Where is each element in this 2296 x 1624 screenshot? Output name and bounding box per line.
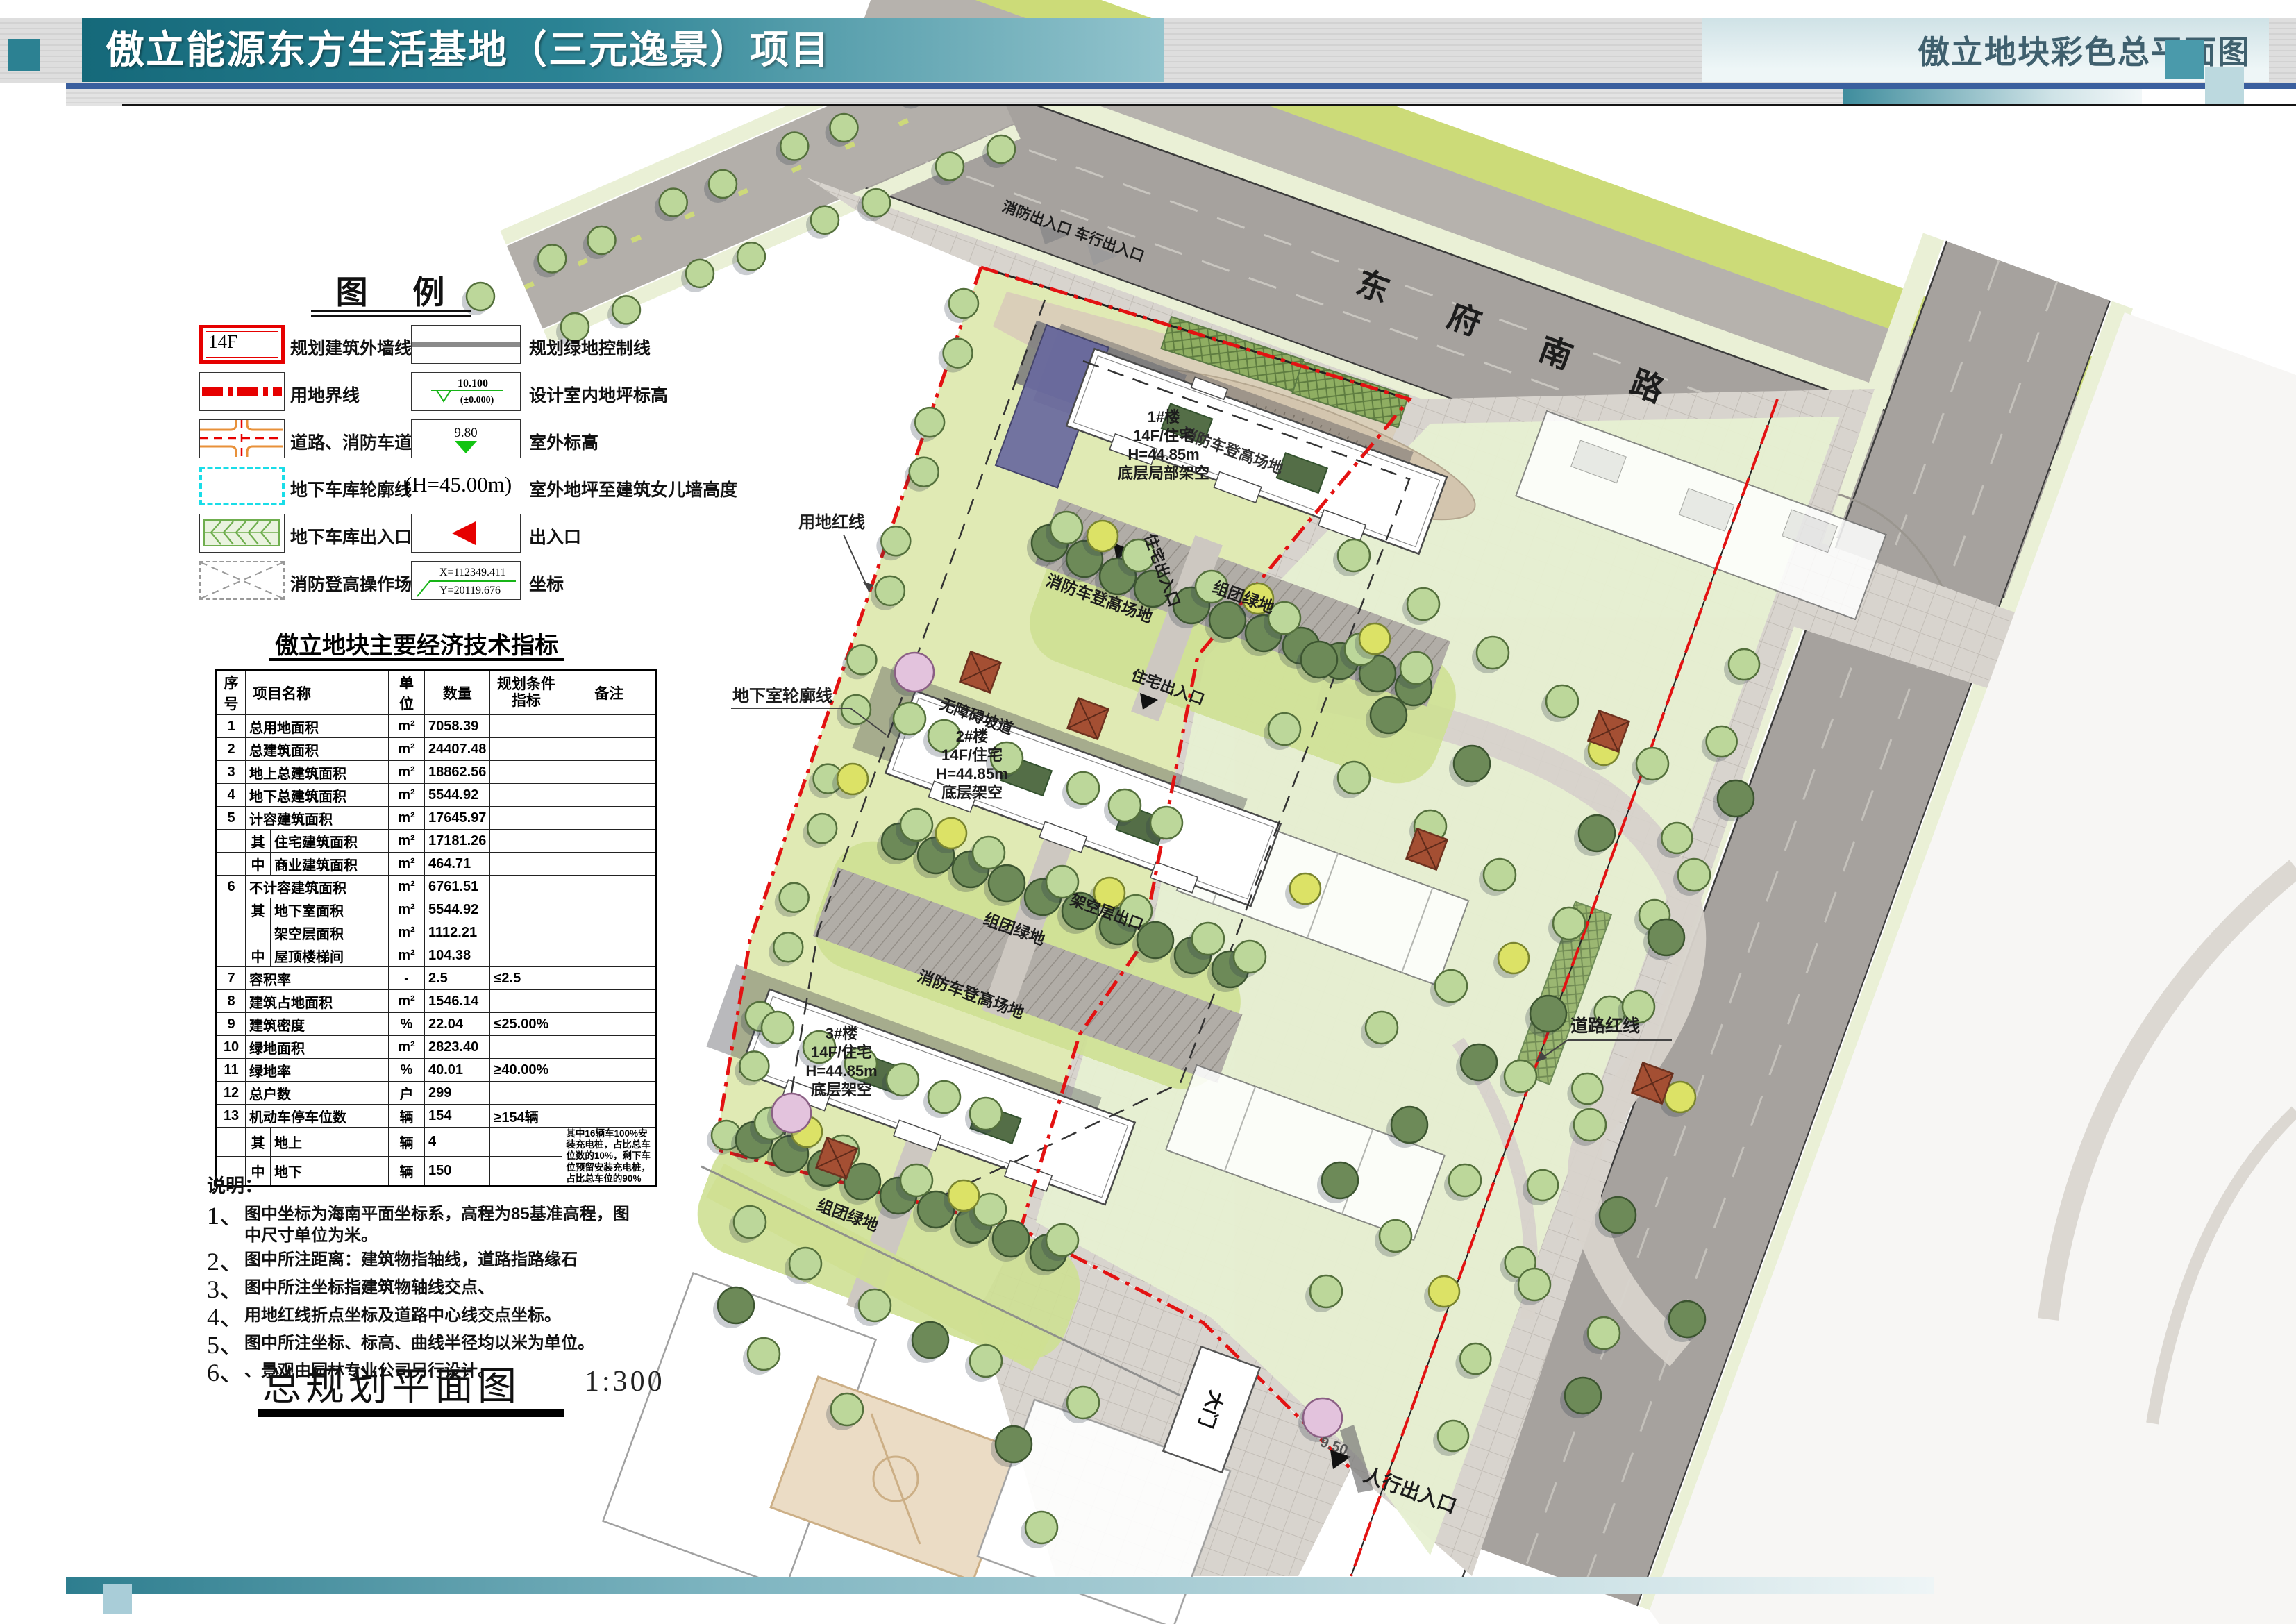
land-boundary-symbol <box>199 372 285 411</box>
note-number: 3、 <box>207 1277 244 1302</box>
table-cell: 1 <box>217 715 246 738</box>
table-cell <box>562 715 657 738</box>
tree-icon <box>944 339 973 368</box>
table-cell: 13 <box>217 1105 246 1128</box>
tree-icon <box>1137 922 1173 958</box>
tree-icon <box>987 135 1015 163</box>
table-cell <box>562 944 657 967</box>
table-cell <box>562 807 657 830</box>
svg-text:14F/住宅: 14F/住宅 <box>811 1044 872 1061</box>
tree-icon <box>1366 1012 1398 1044</box>
table-cell: 总建筑面积 <box>246 738 389 761</box>
table-cell <box>562 876 657 898</box>
tree-icon <box>1359 623 1390 654</box>
tree-icon <box>910 458 939 487</box>
legend-label: 出入口 <box>529 524 581 549</box>
table-header-row: 序号 项目名称 单位 数量 规划条件指标 备注 <box>217 671 657 715</box>
table-row: 10绿地面积m²2823.40 <box>217 1036 657 1059</box>
table-cell: 屋顶楼梯间 <box>271 944 389 967</box>
table-cell <box>490 1128 562 1157</box>
tree-icon <box>894 703 925 735</box>
tree-icon <box>859 1289 891 1321</box>
table-cell: 不计容建筑面积 <box>246 876 389 898</box>
tree-icon <box>1391 1107 1427 1143</box>
tree-icon <box>1729 649 1759 680</box>
table-cell: 2823.40 <box>425 1036 490 1059</box>
table-cell: 建筑密度 <box>246 1013 389 1036</box>
table-row: 4地下总建筑面积m²5544.92 <box>217 784 657 807</box>
table-cell <box>562 853 657 876</box>
table-cell: 辆 <box>389 1128 425 1157</box>
tree-icon <box>1574 1109 1606 1141</box>
note-text: 图中所注坐标指建筑物轴线交点、 <box>244 1277 494 1302</box>
table-cell <box>562 1013 657 1036</box>
table-cell: - <box>389 967 425 990</box>
table-cell: % <box>389 1013 425 1036</box>
tree-icon <box>936 153 964 181</box>
tree-icon <box>1572 1073 1602 1104</box>
table-cell: m² <box>389 715 425 738</box>
tree-icon <box>780 133 808 160</box>
table-cell <box>562 761 657 784</box>
entrance-symbol <box>411 514 521 553</box>
table-cell <box>490 1082 562 1105</box>
table-cell: m² <box>389 944 425 967</box>
tree-icon <box>1718 780 1754 817</box>
table-cell: 18862.56 <box>425 761 490 784</box>
legend-title: 图 例 <box>316 267 483 313</box>
table-cell: 17181.26 <box>425 830 490 853</box>
table-cell <box>562 738 657 761</box>
table-cell <box>562 784 657 807</box>
table-cell: 4 <box>425 1128 490 1157</box>
table-cell: 2.5 <box>425 967 490 990</box>
legend-label: 规划绿地控制线 <box>529 335 651 360</box>
tree-icon <box>1303 1398 1342 1437</box>
indoor-level-value: 10.100 <box>458 378 488 390</box>
tree-icon <box>1600 1197 1636 1233</box>
tree-icon <box>1192 923 1224 955</box>
footer-square <box>103 1584 132 1614</box>
table-row: 架空层面积m²1112.21 <box>217 921 657 944</box>
tree-icon <box>1234 941 1266 973</box>
tree-icon <box>737 242 765 270</box>
table-cell: ≥40.00% <box>490 1059 562 1082</box>
tree-icon <box>1484 859 1516 891</box>
tree-icon <box>1669 1301 1705 1337</box>
table-cell: 154 <box>425 1105 490 1128</box>
note-number: 2、 <box>207 1249 244 1274</box>
table-row: 中屋顶楼梯间m²104.38 <box>217 944 657 967</box>
parapet-height-symbol: (H=45.00m) <box>392 472 524 497</box>
svg-text:底层局部架空: 底层局部架空 <box>1118 464 1209 482</box>
header-substripe-right <box>1843 89 2142 106</box>
table-cell: 总用地面积 <box>246 715 389 738</box>
table-row: 8建筑占地面积m²1546.14 <box>217 990 657 1013</box>
table-cell: 住宅建筑面积 <box>271 830 389 853</box>
tree-icon <box>1407 588 1439 620</box>
note-number: 5、 <box>207 1332 244 1357</box>
table-cell: 12 <box>217 1082 246 1105</box>
table-cell: m² <box>389 876 425 898</box>
table-cell <box>217 898 246 921</box>
tree-icon <box>1310 1275 1342 1307</box>
table-row: 13机动车停车位数辆154≥154辆 <box>217 1105 657 1128</box>
note-text: 图中所注距离：建筑物指轴线，道路指路缘石 <box>244 1249 578 1274</box>
page-title: 傲立能源东方生活基地（三元逸景）项目 <box>82 18 1164 82</box>
svg-text:底层架空: 底层架空 <box>941 784 1003 801</box>
table-cell: 中 <box>246 944 271 967</box>
tree-icon <box>1636 748 1668 780</box>
land-red-line-label: 用地红线 <box>798 512 865 532</box>
table-cell: 299 <box>425 1082 490 1105</box>
note-item: 2、图中所注距离：建筑物指轴线，道路指路缘石 <box>207 1249 630 1274</box>
plan-title: 总规划平面图 <box>262 1355 521 1412</box>
tree-icon <box>862 189 890 217</box>
table-cell <box>490 715 562 738</box>
table-cell: 其 <box>246 898 271 921</box>
tree-icon <box>1579 815 1615 851</box>
col-no: 序号 <box>217 671 246 715</box>
table-cell: 绿地面积 <box>246 1036 389 1059</box>
tree-icon <box>1707 726 1737 757</box>
tree-icon <box>773 932 803 962</box>
table-cell <box>490 830 562 853</box>
corner-square-right-light <box>2205 67 2244 106</box>
svg-text:底层架空: 底层架空 <box>811 1081 872 1098</box>
table-cell: 8 <box>217 990 246 1013</box>
coordinate-x: X=112349.411 <box>439 567 505 578</box>
tree-icon <box>612 296 640 324</box>
note-number: 6、 <box>207 1360 244 1385</box>
table-cell: 中 <box>246 853 271 876</box>
note-text: 图中坐标为海南平面坐标系，高程为85基准高程，图中尺寸单位为米。 <box>244 1203 630 1246</box>
table-cell: 5544.92 <box>425 898 490 921</box>
svg-text:H=44.85m: H=44.85m <box>936 765 1007 782</box>
indicators-title-underline <box>269 658 564 661</box>
tree-icon <box>1461 1044 1497 1080</box>
legend-label: 室外地坪至建筑女儿墙高度 <box>529 476 737 501</box>
note-item: 3、图中所注坐标指建筑物轴线交点、 <box>207 1277 630 1302</box>
tree-icon <box>1268 713 1300 745</box>
tree-icon <box>831 1393 863 1425</box>
table-cell <box>490 944 562 967</box>
footer-band <box>66 1577 1934 1594</box>
table-cell: 1546.14 <box>425 990 490 1013</box>
table-cell <box>490 898 562 921</box>
basement-outline-label: 地下室轮廓线 <box>732 686 832 705</box>
table-cell <box>217 1128 246 1157</box>
tree-icon <box>887 1064 919 1096</box>
table-cell <box>490 1036 562 1059</box>
table-cell: 104.38 <box>425 944 490 967</box>
tree-icon <box>1530 996 1566 1032</box>
legend-label: 消防登高操作场地 <box>290 571 429 596</box>
legend-label: 地下车库出入口 <box>290 524 412 549</box>
legend-label: 设计室内地坪标高 <box>529 382 668 407</box>
table-row: 其住宅建筑面积m²17181.26 <box>217 830 657 853</box>
note-text: 用地红线折点坐标及道路中心线交点坐标。 <box>244 1305 561 1330</box>
legend-underline2 <box>311 315 471 317</box>
table-cell: m² <box>389 1036 425 1059</box>
tree-icon <box>748 1338 780 1370</box>
table-cell: 11 <box>217 1059 246 1082</box>
table-cell <box>490 876 562 898</box>
table-cell: 地下总建筑面积 <box>246 784 389 807</box>
table-cell: 总户数 <box>246 1082 389 1105</box>
tree-icon <box>762 1012 794 1044</box>
table-cell <box>562 1082 657 1105</box>
tree-icon <box>993 1221 1029 1257</box>
table-cell: m² <box>389 738 425 761</box>
table-cell: ≥154辆 <box>490 1105 562 1128</box>
table-cell: 商业建筑面积 <box>271 853 389 876</box>
sheet-frame-line <box>122 104 2296 106</box>
table-cell <box>490 853 562 876</box>
coordinate-symbol: X=112349.411 Y=20119.676 <box>411 561 521 600</box>
table-cell: m² <box>389 898 425 921</box>
table-cell <box>490 784 562 807</box>
header-divider-line <box>66 83 2296 89</box>
tree-icon <box>1290 873 1321 904</box>
tree-icon <box>739 1051 769 1080</box>
col-name: 项目名称 <box>246 671 389 715</box>
indicators-title: 傲立地块主要经济技术指标 <box>250 626 583 660</box>
tree-icon <box>1109 789 1141 821</box>
table-cell: 7058.39 <box>425 715 490 738</box>
table-cell: 5 <box>217 807 246 830</box>
table-cell: 地下室面积 <box>271 898 389 921</box>
table-cell: 2 <box>217 738 246 761</box>
table-cell: 其 <box>246 1128 271 1157</box>
plan-title-underline <box>258 1409 564 1417</box>
tree-icon <box>1553 907 1585 939</box>
tree-icon <box>1338 539 1370 571</box>
tree-icon <box>1588 1317 1620 1349</box>
fire-pad-symbol <box>199 561 285 600</box>
svg-text:3#楼: 3#楼 <box>826 1025 857 1042</box>
tree-icon <box>912 1322 948 1358</box>
notes-title: 说明： <box>207 1171 630 1198</box>
tree-icon <box>973 837 1005 869</box>
tree-icon <box>847 645 876 674</box>
tree-icon <box>1454 746 1490 782</box>
tree-icon <box>1050 512 1082 544</box>
col-plan: 规划条件指标 <box>490 671 562 715</box>
tree-icon <box>789 1248 821 1280</box>
tree-icon <box>1322 1162 1358 1198</box>
table-cell <box>490 921 562 944</box>
svg-text:14F/住宅: 14F/住宅 <box>941 746 1003 764</box>
table-cell <box>562 830 657 853</box>
tree-icon <box>1301 642 1337 678</box>
table-cell <box>562 990 657 1013</box>
building-outline-symbol: 14F <box>199 325 285 364</box>
col-remark: 备注 <box>562 671 657 715</box>
note-number: 1、 <box>207 1203 244 1246</box>
table-cell: 地上 <box>271 1128 389 1157</box>
legend-label: 坐标 <box>529 571 564 596</box>
table-cell: 22.04 <box>425 1013 490 1036</box>
table-cell <box>562 1105 657 1128</box>
tree-icon <box>837 764 868 794</box>
table-row: 其地上辆4其中16辆车100%安装充电桩，占比总车位数的10%，剩下车位预留安装… <box>217 1128 657 1157</box>
tree-icon <box>718 1287 754 1323</box>
table-cell <box>246 921 271 944</box>
tree-icon <box>807 814 837 843</box>
col-qty: 数量 <box>425 671 490 715</box>
tree-icon <box>811 206 839 234</box>
table-cell <box>562 921 657 944</box>
tree-icon <box>1460 1343 1491 1374</box>
table-cell: 1112.21 <box>425 921 490 944</box>
tree-icon <box>1518 1269 1550 1300</box>
table-cell: 9 <box>217 1013 246 1036</box>
table-cell: 24407.48 <box>425 738 490 761</box>
table-cell: 17645.97 <box>425 807 490 830</box>
tree-icon <box>1067 772 1099 804</box>
tree-icon <box>1371 697 1407 733</box>
tree-icon <box>588 226 616 254</box>
symbol-floor-text: 14F <box>208 331 237 353</box>
site-plan-sheet: 大门 东 府 南 路 消防出入口 车行出入口 消防车登高场地 消防车登高场地 消… <box>0 0 2296 1624</box>
tree-icon <box>1449 1164 1481 1196</box>
svg-text:14F/住宅: 14F/住宅 <box>1133 427 1194 444</box>
table-cell: 5544.92 <box>425 784 490 807</box>
table-cell: m² <box>389 853 425 876</box>
table-cell <box>490 761 562 784</box>
tree-icon <box>1498 943 1529 973</box>
table-row: 中商业建筑面积m²464.71 <box>217 853 657 876</box>
note-number: 4、 <box>207 1305 244 1330</box>
table-row: 5计容建筑面积m²17645.97 <box>217 807 657 830</box>
table-cell: 6761.51 <box>425 876 490 898</box>
table-cell: ≤25.00% <box>490 1013 562 1036</box>
tree-icon <box>1150 807 1182 839</box>
svg-text:H=44.85m: H=44.85m <box>805 1062 877 1080</box>
table-cell: ≤2.5 <box>490 967 562 990</box>
tree-icon <box>989 865 1025 901</box>
table-cell <box>490 738 562 761</box>
table-cell: 6 <box>217 876 246 898</box>
table-cell: m² <box>389 921 425 944</box>
tree-icon <box>1678 859 1710 891</box>
garage-entrance-symbol <box>199 514 285 553</box>
table-cell: % <box>389 1059 425 1082</box>
table-row: 12总户数户299 <box>217 1082 657 1105</box>
tree-icon <box>1648 919 1684 955</box>
table-cell <box>217 853 246 876</box>
tree-icon <box>948 1180 979 1211</box>
table-cell: 建筑占地面积 <box>246 990 389 1013</box>
tree-icon <box>1380 1220 1411 1252</box>
indicators-table: 序号 项目名称 单位 数量 规划条件指标 备注 1总用地面积m²7058.392… <box>215 669 657 1187</box>
tree-icon <box>1429 1276 1459 1307</box>
svg-text:H=44.85m: H=44.85m <box>1128 446 1199 463</box>
table-cell: 464.71 <box>425 853 490 876</box>
table-cell: 容积率 <box>246 967 389 990</box>
coordinate-y: Y=20119.676 <box>439 585 501 596</box>
road-red-line-label: 道路红线 <box>1570 1016 1640 1036</box>
corner-square-left <box>8 39 40 71</box>
tree-icon <box>538 245 566 273</box>
indoor-level-symbol: 10.100 (±0.000) <box>411 372 521 411</box>
table-cell: m² <box>389 784 425 807</box>
tree-icon <box>709 170 737 198</box>
legend-label: 道路、消防车道 <box>290 429 412 454</box>
svg-text:1#楼: 1#楼 <box>1148 408 1180 426</box>
table-cell <box>217 921 246 944</box>
tree-icon <box>1025 1512 1057 1543</box>
corner-square-right-teal <box>2165 40 2204 79</box>
tree-icon <box>734 1206 766 1238</box>
tree-icon <box>1400 652 1432 684</box>
tree-icon <box>928 1081 960 1113</box>
tree-icon <box>1565 1378 1601 1414</box>
indoor-level-datum: (±0.000) <box>460 395 494 405</box>
table-cell: m² <box>389 830 425 853</box>
table-row: 11绿地率%40.01≥40.00% <box>217 1059 657 1082</box>
tree-icon <box>1477 637 1509 669</box>
col-unit: 单位 <box>389 671 425 715</box>
plan-scale: 1:300 <box>585 1365 665 1398</box>
table-cell: 户 <box>389 1082 425 1105</box>
tree-icon <box>1661 823 1692 853</box>
table-cell: 机动车停车位数 <box>246 1105 389 1128</box>
table-row: 1总用地面积m²7058.39 <box>217 715 657 738</box>
outdoor-level-value: 9.80 <box>454 426 477 440</box>
tree-icon <box>936 818 966 848</box>
svg-text:2#楼: 2#楼 <box>956 728 988 745</box>
tree-icon <box>660 189 687 217</box>
tree-icon <box>686 260 714 287</box>
tree-icon <box>996 1426 1032 1462</box>
tree-icon <box>1435 970 1467 1002</box>
tree-icon <box>1046 1224 1078 1256</box>
table-cell: 计容建筑面积 <box>246 807 389 830</box>
header-substripe <box>66 89 1843 106</box>
table-cell: 10 <box>217 1036 246 1059</box>
legend-label: 室外标高 <box>529 429 598 454</box>
table-cell: m² <box>389 990 425 1013</box>
table-cell <box>217 944 246 967</box>
tree-icon <box>970 1098 1002 1130</box>
table-cell: m² <box>389 807 425 830</box>
table-cell: 地上总建筑面积 <box>246 761 389 784</box>
tree-icon <box>772 1094 811 1132</box>
tree-icon <box>915 408 944 437</box>
tree-icon <box>949 289 978 318</box>
note-item: 4、用地红线折点坐标及道路中心线交点坐标。 <box>207 1305 630 1330</box>
outdoor-level-symbol: 9.80 <box>411 419 521 458</box>
table-cell <box>562 1059 657 1082</box>
legend-underline <box>311 310 471 312</box>
table-cell <box>562 967 657 990</box>
tree-icon <box>1067 1387 1099 1418</box>
table-row: 7容积率-2.5≤2.5 <box>217 967 657 990</box>
note-text: 图中所注坐标、标高、曲线半径均以米为单位。 <box>244 1332 594 1357</box>
table-row: 2总建筑面积m²24407.48 <box>217 738 657 761</box>
note-item: 1、图中坐标为海南平面坐标系，高程为85基准高程，图中尺寸单位为米。 <box>207 1203 630 1246</box>
tree-icon <box>1505 1060 1536 1092</box>
table-cell <box>562 898 657 921</box>
table-cell: 7 <box>217 967 246 990</box>
tree-icon <box>900 809 932 841</box>
table-cell: 40.01 <box>425 1059 490 1082</box>
table-cell: 架空层面积 <box>271 921 389 944</box>
table-cell: 4 <box>217 784 246 807</box>
table-cell: 3 <box>217 761 246 784</box>
